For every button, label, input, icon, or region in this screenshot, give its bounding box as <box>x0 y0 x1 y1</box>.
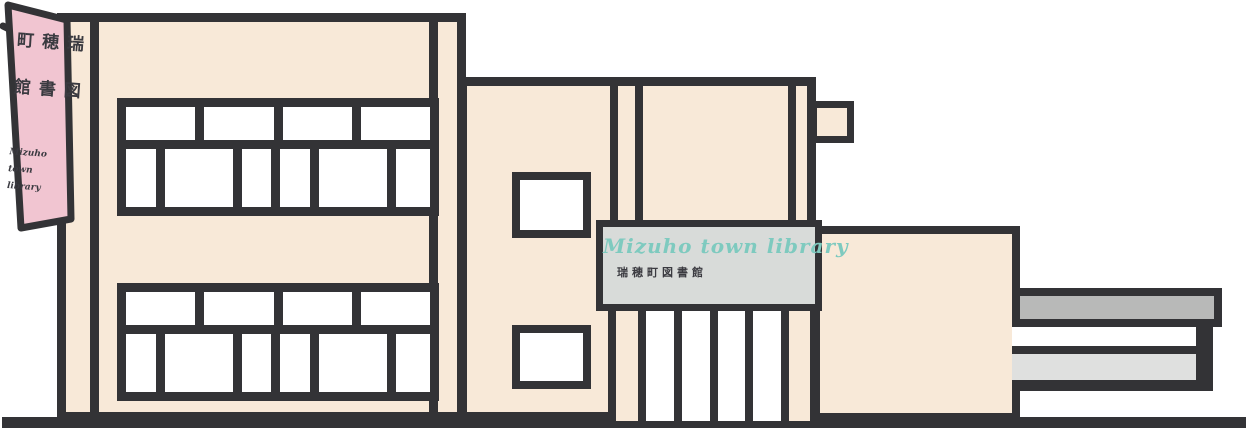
window-pane <box>319 149 387 207</box>
window-pane <box>319 334 387 392</box>
window-pane <box>361 292 430 325</box>
canopy-roof <box>1012 288 1222 327</box>
banner-jp-col-left: 図書館 <box>6 76 84 121</box>
window-pane <box>280 334 310 392</box>
tower-side-box <box>810 101 854 143</box>
library-building-illustration: Mizuho town library 瑞穂町図書館 瑞穂町 図書館 Mizuh… <box>0 0 1246 429</box>
colonnade-pillar <box>789 300 810 421</box>
small-window-lower <box>512 325 591 389</box>
window-pane <box>165 334 233 392</box>
sign-japanese-text: 瑞穂町図書館 <box>617 264 815 280</box>
window-pane <box>165 149 233 207</box>
window-pane <box>396 149 430 207</box>
sign-script-text: Mizuho town library <box>603 234 815 258</box>
window-pane <box>396 334 430 392</box>
window-pane <box>126 107 195 140</box>
window-pane <box>280 149 310 207</box>
small-window-upper <box>512 172 591 238</box>
window-row <box>126 107 430 140</box>
window-pane <box>283 292 352 325</box>
canopy-opening <box>1012 327 1196 346</box>
window-row <box>126 292 430 325</box>
window-pane <box>204 292 273 325</box>
glass-panel <box>753 300 781 421</box>
entrance-colonnade <box>608 300 818 421</box>
banner-script-text: Mizuho town library <box>6 144 57 199</box>
window-pane <box>242 149 272 207</box>
canopy-right-wall <box>1196 327 1213 391</box>
banner-script-line: library <box>6 178 55 198</box>
window-pane <box>126 334 156 392</box>
window-pane <box>361 107 430 140</box>
lower-window-block <box>117 283 439 401</box>
upper-window-block <box>117 98 439 216</box>
glass-panel <box>682 300 710 421</box>
window-pane <box>126 149 156 207</box>
canopy-base-edge <box>1012 380 1213 391</box>
window-row <box>126 149 430 207</box>
tower-seam-right <box>788 86 796 226</box>
glass-panel <box>646 300 674 421</box>
canopy-base-slab <box>1012 354 1202 380</box>
left-building <box>57 13 466 421</box>
banner-vertical-text: 瑞穂町 図書館 <box>6 30 87 121</box>
colonnade-pillar <box>616 300 638 421</box>
banner-jp-col-right: 瑞穂町 <box>9 30 87 75</box>
facade-sign: Mizuho town library 瑞穂町図書館 <box>596 220 822 311</box>
window-pane <box>242 334 272 392</box>
window-row <box>126 334 430 392</box>
glass-panel <box>718 300 746 421</box>
window-pane <box>204 107 273 140</box>
window-pane <box>283 107 352 140</box>
canopy-ledge <box>1012 346 1202 354</box>
window-pane <box>126 292 195 325</box>
